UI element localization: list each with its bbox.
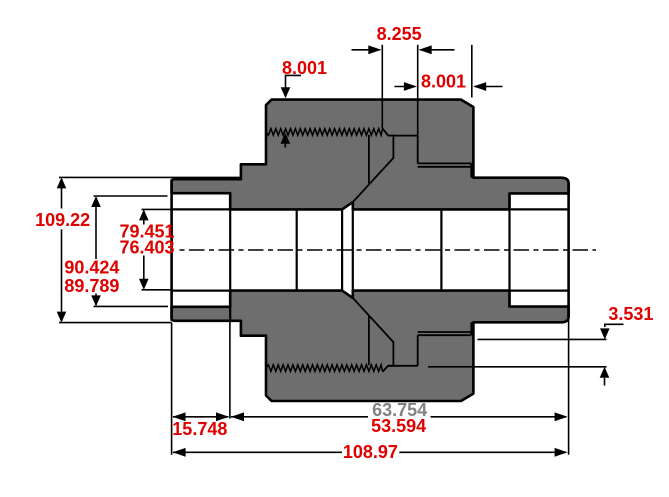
svg-text:76.403: 76.403 [120,237,175,257]
svg-text:8.255: 8.255 [377,24,422,44]
svg-text:108.97: 108.97 [343,442,398,462]
svg-text:90.424: 90.424 [64,257,119,277]
svg-text:53.594: 53.594 [371,416,426,436]
svg-text:109.22: 109.22 [35,210,90,230]
svg-text:8.001: 8.001 [421,71,466,91]
svg-text:8.001: 8.001 [282,58,327,78]
svg-text:15.748: 15.748 [172,419,227,439]
svg-text:89.789: 89.789 [64,276,119,296]
svg-text:3.531: 3.531 [608,304,653,324]
